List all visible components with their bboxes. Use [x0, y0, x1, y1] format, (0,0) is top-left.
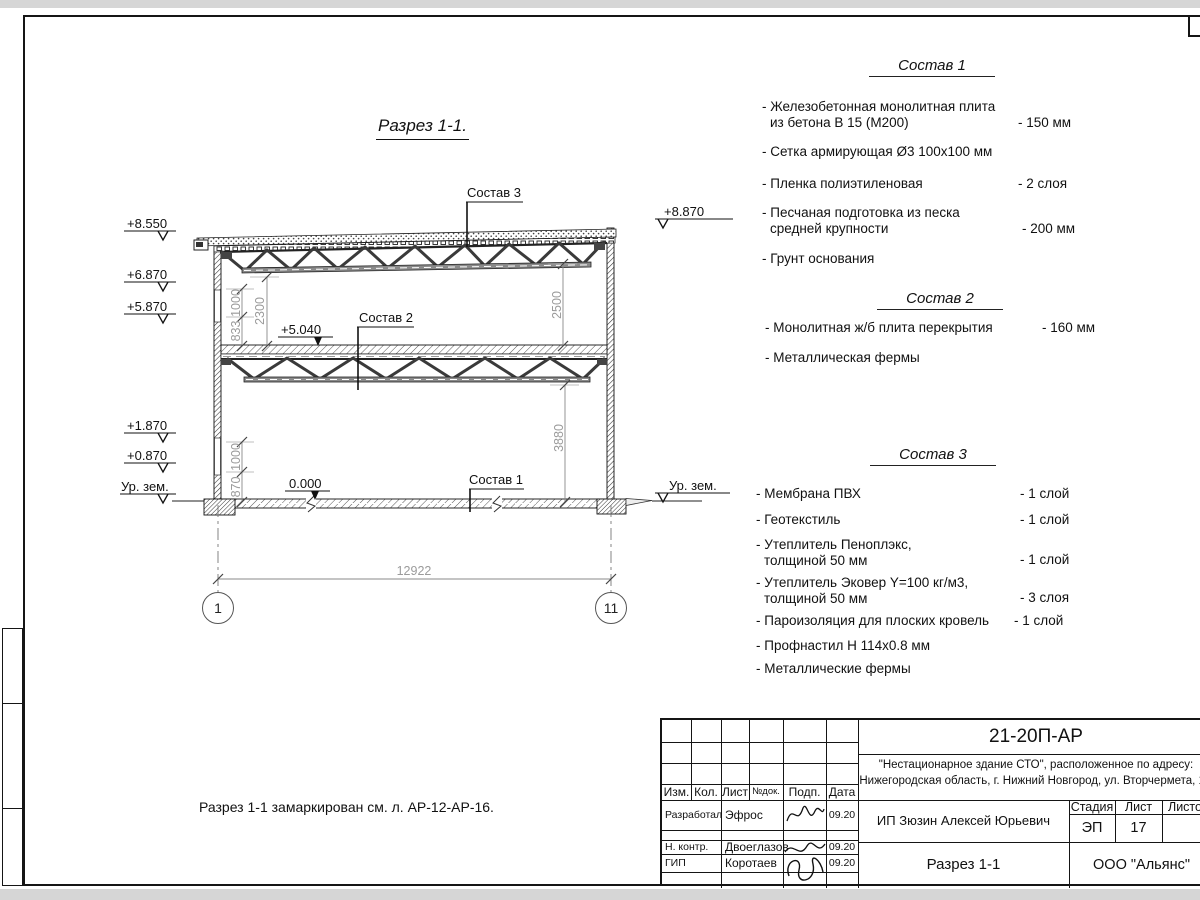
- tb-role: Н. контр.: [663, 840, 723, 854]
- tb-drawing-name: Разрез 1-1: [858, 842, 1069, 888]
- title-block: Изм. Кол. Лист №док. Подп. Дата Разработ…: [660, 718, 1200, 886]
- composition-item: - Монолитная ж/б плита перекрытия: [765, 320, 993, 336]
- signature-scribble: [781, 838, 827, 888]
- composition-value: - 1 слой: [1020, 486, 1069, 502]
- elevation-label: +5.870: [127, 299, 167, 314]
- composition-heading: Состав 3: [870, 446, 996, 466]
- elevation-marks-right: +8.870 Ур. зем.: [655, 204, 733, 502]
- tb-col-list: Лист: [721, 784, 749, 800]
- composition-value: - 160 мм: [1042, 320, 1095, 336]
- section-drawing: 1 11 1000 833 2300 1000: [0, 0, 760, 660]
- tb-role: ГИП: [663, 854, 723, 872]
- elevation-marks-left: +8.550 +6.870 +5.870 +1.870 +0.870 Ур. з…: [120, 216, 176, 503]
- tb-col-kol: Кол.: [691, 784, 721, 800]
- axis-label: 1: [214, 600, 222, 616]
- dim-label: 2300: [253, 297, 267, 325]
- composition-item: - Геотекстиль: [756, 512, 840, 528]
- tb-doc-number: 21-20П-АР: [858, 720, 1200, 754]
- reference-note: Разрез 1-1 замаркирован см. л. АР-12-АР-…: [199, 799, 494, 815]
- floor-assembly: [221, 345, 607, 382]
- dim-label: 12922: [397, 564, 432, 578]
- tb-sheets-label: Листов: [1162, 800, 1200, 814]
- tb-date: 09.20: [826, 854, 858, 872]
- elevation-label: Ур. зем.: [121, 479, 169, 494]
- dimension-labels: 1000 833 2300 1000 870 2500 3880 12922: [229, 289, 566, 578]
- composition-heading: Состав 1: [869, 57, 995, 77]
- elevation-label: +8.550: [127, 216, 167, 231]
- composition-value: - 1 слой: [1020, 552, 1069, 568]
- tb-client: ИП Зюзин Алексей Юрьевич: [858, 800, 1069, 842]
- elevation-label: +8.870: [664, 204, 704, 219]
- composition-heading: Состав 2: [877, 290, 1003, 310]
- tb-col-izm: Изм.: [662, 784, 691, 800]
- margin-box-3: [2, 808, 23, 886]
- dim-label: 2500: [550, 291, 564, 319]
- corner-stamp-box: [1188, 15, 1200, 37]
- margin-box-2: [2, 703, 23, 809]
- composition-item-line2: толщиной 50 мм: [764, 591, 867, 607]
- tb-company: ООО "Альянс": [1069, 842, 1200, 888]
- dim-label: 3880: [552, 424, 566, 452]
- axis-label: 11: [604, 600, 619, 616]
- composition-item: - Сетка армирующая Ø3 100х100 мм: [762, 144, 992, 160]
- composition-value: - 1 слой: [1014, 613, 1063, 629]
- left-wall: [214, 239, 221, 502]
- composition-item: - Утеплитель Пеноплэкс,: [756, 537, 912, 553]
- composition-value: - 3 слоя: [1020, 590, 1069, 606]
- composition-item: - Пленка полиэтиленовая: [762, 176, 923, 192]
- drawing-sheet-page: { "page": { "title": "Разрез 1-1.", "not…: [0, 0, 1200, 900]
- tb-date: 09.20: [826, 840, 858, 854]
- tb-name: Коротаев: [721, 854, 787, 872]
- callout-label: Состав 2: [359, 310, 413, 325]
- break-mark: [492, 496, 502, 512]
- elevation-label: +6.870: [127, 267, 167, 282]
- composition-item: - Профнастил Н 114х0.8 мм: [756, 638, 930, 654]
- composition-item: - Пароизоляция для плоских кровель: [756, 613, 989, 629]
- tb-date: 09.20: [826, 800, 858, 830]
- composition-item: - Песчаная подготовка из песка: [762, 205, 960, 221]
- floor-truss: [228, 358, 604, 379]
- dim-label: 1000: [229, 289, 243, 317]
- tb-name: Двоеглазов: [721, 840, 787, 854]
- composition-item-line2: из бетона В 15 (М200): [770, 115, 909, 131]
- tb-stage-value: ЭП: [1069, 814, 1115, 842]
- composition-item: - Мембрана ПВХ: [756, 486, 861, 502]
- composition-item: - Металлическая фермы: [765, 350, 920, 366]
- composition-value: - 2 слоя: [1018, 176, 1067, 192]
- composition-item: - Грунт основания: [762, 251, 874, 267]
- dim-label: 1000: [229, 443, 243, 471]
- signature-scribble: [784, 801, 826, 829]
- tb-role: Разработал: [663, 800, 723, 830]
- composition-value: - 200 мм: [1022, 221, 1075, 237]
- tb-stage-label: Стадия: [1069, 800, 1115, 814]
- callout-label: Состав 3: [467, 185, 521, 200]
- ground-slab: [172, 496, 702, 515]
- roof-assembly: [194, 229, 616, 273]
- elevation-label: +0.870: [127, 448, 167, 463]
- composition-item: - Металлические фермы: [756, 661, 911, 677]
- composition-item-line2: толщиной 50 мм: [764, 553, 867, 569]
- composition-item: - Утеплитель Эковер Y=100 кг/м3,: [756, 575, 968, 591]
- composition-value: - 1 слой: [1020, 512, 1069, 528]
- dim-label: 870: [229, 477, 243, 498]
- tb-col-ndok: №док.: [749, 784, 783, 800]
- right-wall: [607, 228, 614, 502]
- level-label: 0.000: [289, 476, 322, 491]
- tb-name: Эфрос: [721, 800, 787, 830]
- elevation-label: Ур. зем.: [669, 478, 717, 493]
- elevation-label: +1.870: [127, 418, 167, 433]
- tb-sheet-number: 17: [1115, 814, 1162, 842]
- tb-col-data: Дата: [826, 784, 858, 800]
- tb-sheet-label: Лист: [1115, 800, 1162, 814]
- tb-project-line1: "Нестационарное здание СТО", расположенн…: [858, 758, 1200, 772]
- tb-col-podp: Подп.: [783, 784, 826, 800]
- tb-project-line2: Нижегородская область, г. Нижний Новгоро…: [858, 774, 1200, 788]
- level-label: +5.040: [281, 322, 321, 337]
- callout-label: Состав 1: [469, 472, 523, 487]
- dim-label: 833: [229, 321, 243, 342]
- composition-item-line2: средней крупности: [770, 221, 888, 237]
- composition-value: - 150 мм: [1018, 115, 1071, 131]
- composition-item: - Железобетонная монолитная плита: [762, 99, 995, 115]
